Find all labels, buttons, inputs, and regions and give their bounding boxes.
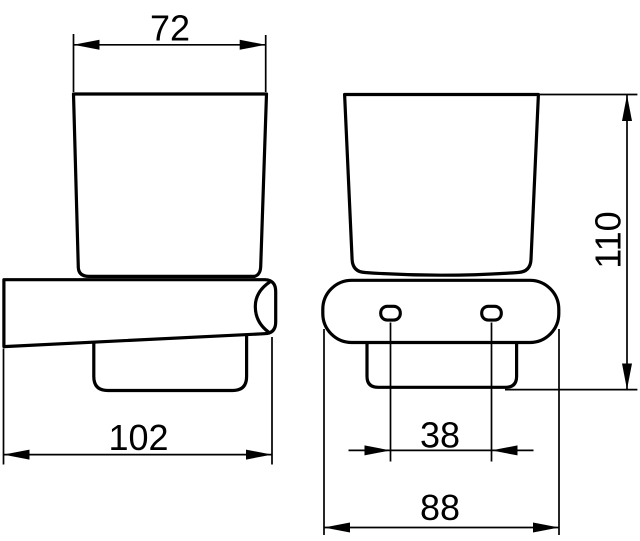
svg-text:88: 88 [420, 487, 460, 528]
svg-text:72: 72 [150, 8, 190, 49]
svg-text:110: 110 [588, 211, 629, 268]
svg-text:38: 38 [420, 415, 460, 456]
svg-text:102: 102 [108, 417, 168, 458]
